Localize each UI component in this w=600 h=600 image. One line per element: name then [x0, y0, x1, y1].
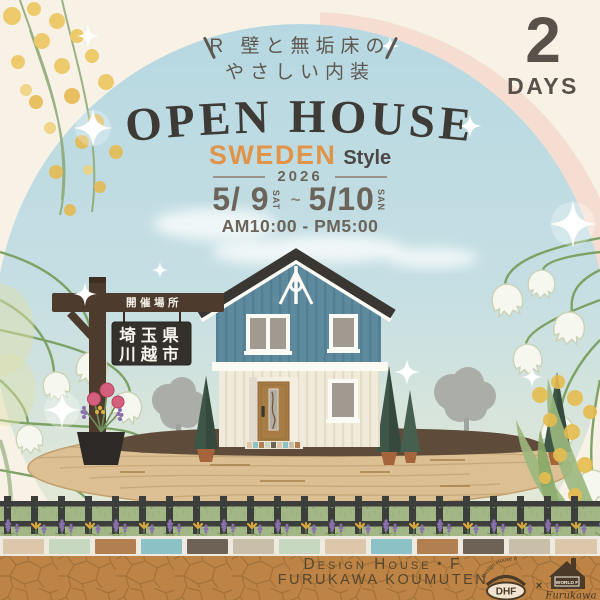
- style-primary: SWEDEN: [209, 140, 337, 170]
- sign-city: 川越市: [112, 346, 191, 365]
- date-separator: ~: [291, 190, 301, 210]
- year-left-rule: [213, 176, 265, 178]
- event-dates: 5/ 9 SAT ~ 5/10 SAN: [0, 181, 600, 218]
- style-secondary: Style: [343, 147, 391, 169]
- days-label: DAYS: [500, 73, 586, 100]
- dhf-abbr: DHF: [496, 587, 517, 598]
- open-house-poster: R 壁と無垢床の やさしい内装 OPEN HOUSE SWEDENStyle 2…: [0, 0, 600, 600]
- furukawa-logo: WORLD F Furukawa: [544, 558, 596, 600]
- days-count: 2: [500, 10, 586, 71]
- event-time: AM10:00 - PM5:00: [0, 216, 600, 237]
- year-right-rule: [335, 176, 387, 178]
- end-day: SAN: [375, 185, 388, 215]
- sign-prefecture: 埼玉県: [112, 327, 191, 346]
- end-date: 5/10: [309, 181, 375, 218]
- logo-lockup: Design House F DHF × WORLD F Furukawa: [477, 551, 600, 600]
- style-label: SWEDENStyle: [0, 140, 600, 171]
- dhf-logo: Design House F DHF: [481, 556, 525, 599]
- sign-header: 開催場所: [117, 295, 191, 310]
- fence-and-garden-strip: [0, 496, 600, 538]
- start-day: SAT: [270, 185, 283, 215]
- start-date: 5/ 9: [212, 181, 269, 218]
- partner-label: WORLD F: [556, 580, 578, 586]
- logo-separator: ×: [536, 580, 542, 592]
- sign-location: 埼玉県 川越市: [112, 327, 191, 365]
- days-badge: 2 DAYS: [500, 10, 586, 100]
- partner-script: Furukawa: [544, 591, 596, 600]
